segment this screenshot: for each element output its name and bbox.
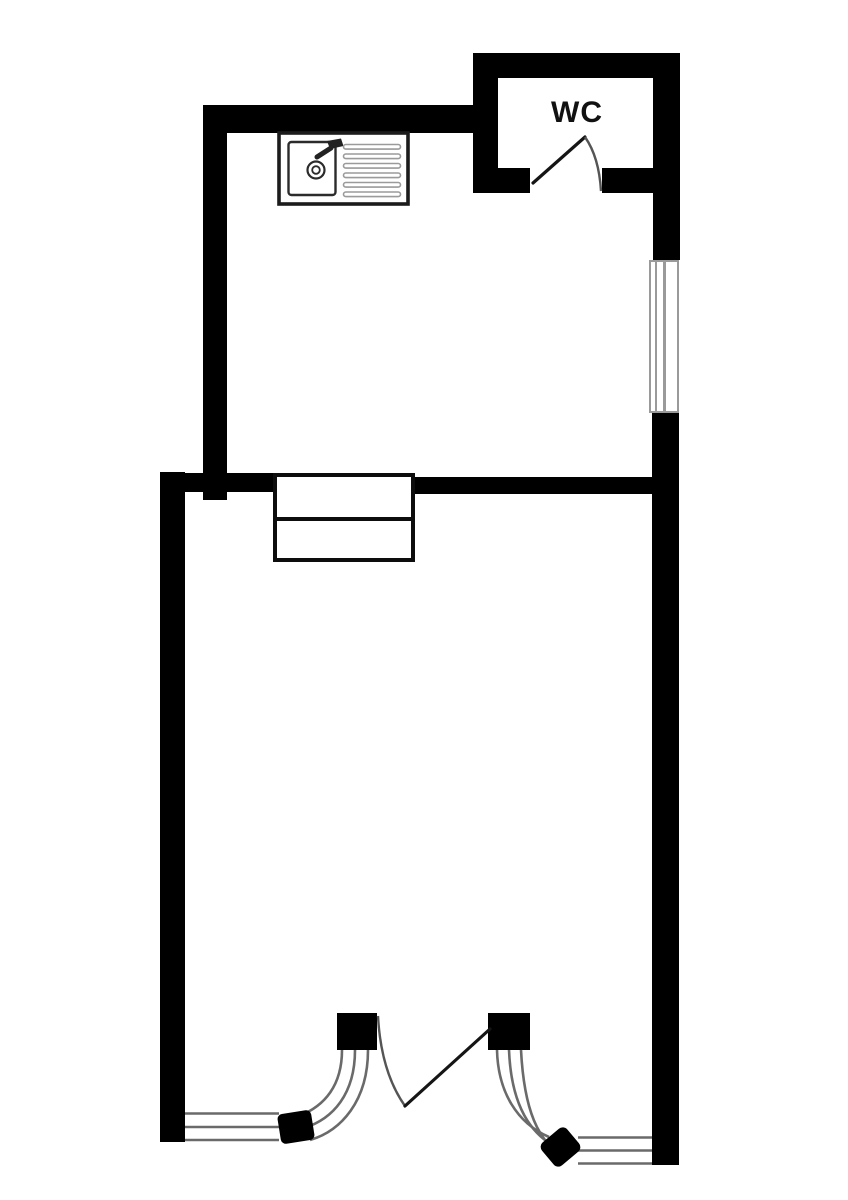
sink-drainboard-slat <box>344 173 401 178</box>
sink-outline <box>279 133 408 204</box>
wc-door-swing-arc <box>585 137 601 191</box>
wall-wc-bottom-right <box>602 168 653 193</box>
sink-drainboard-slat <box>344 154 401 159</box>
floor-plan: WC <box>0 0 848 1200</box>
glazed-wall-left <box>185 1050 368 1140</box>
sink-drain-inner <box>312 166 320 174</box>
wc-door-icon <box>533 137 601 191</box>
window-pane-line <box>655 262 657 411</box>
door-post-right <box>488 1013 530 1050</box>
sink-basin <box>289 142 336 195</box>
sink-drainboard-slat <box>344 192 401 197</box>
wall-top-main <box>203 105 473 133</box>
bottom-door-icon <box>378 1016 490 1106</box>
door-end-block-left <box>277 1110 315 1145</box>
sink-faucet-head <box>327 139 344 150</box>
wall-right-upper <box>653 53 680 260</box>
serving-hatch-divider <box>277 517 411 521</box>
bottom-door-swing-arc <box>378 1016 405 1106</box>
sink-drainboard-slat <box>344 183 401 188</box>
wall-right-lower <box>652 413 679 1165</box>
sink-drain <box>308 162 325 179</box>
bottom-door-leaf <box>405 1029 490 1106</box>
wall-left-lower <box>160 472 185 1142</box>
wall-wc-top <box>473 53 680 78</box>
door-post-left <box>337 1013 377 1050</box>
wall-mid-right <box>415 477 652 494</box>
door-end-block-right <box>538 1125 583 1169</box>
glazed-wall-right <box>497 1050 652 1164</box>
serving-hatch <box>273 473 415 562</box>
sink-faucet-icon <box>317 148 331 157</box>
sink-drainboard-slat <box>344 145 401 150</box>
wall-wc-left <box>473 53 498 193</box>
room-label-wc: WC <box>530 96 624 130</box>
window <box>649 260 679 413</box>
window-pane-line <box>663 262 666 411</box>
wc-door-leaf <box>533 137 585 183</box>
fixtures-overlay <box>0 0 848 1200</box>
wall-left-upper <box>203 105 227 500</box>
wall-wc-bottom-left <box>498 168 530 193</box>
kitchen-sink-icon <box>279 133 408 204</box>
sink-drainboard-slat <box>344 164 401 169</box>
